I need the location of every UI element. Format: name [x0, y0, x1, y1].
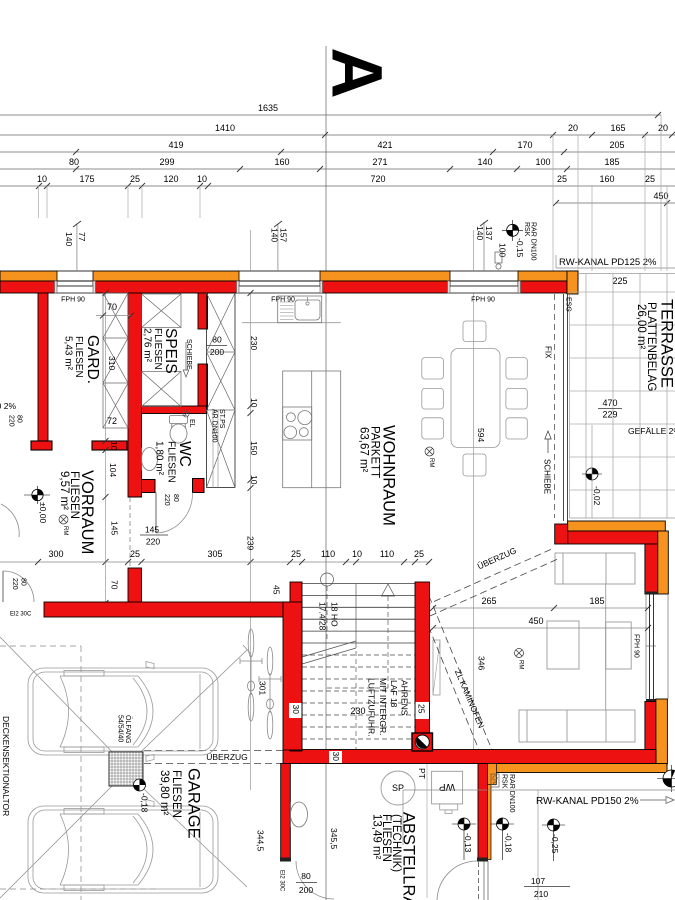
- svg-text:205: 205: [609, 140, 624, 150]
- svg-text:2,76 m²: 2,76 m²: [142, 328, 153, 363]
- svg-text:140: 140: [477, 157, 492, 167]
- svg-text:1,80 m²: 1,80 m²: [154, 441, 165, 476]
- svg-text:LAF 18: LAF 18: [389, 680, 399, 708]
- svg-text:305: 305: [207, 549, 222, 559]
- svg-text:SPEIS: SPEIS: [162, 328, 179, 374]
- svg-text:299: 299: [159, 157, 174, 167]
- svg-text:220: 220: [163, 494, 170, 506]
- svg-text:421: 421: [377, 140, 392, 150]
- svg-text:El2 30C: El2 30C: [279, 870, 285, 892]
- svg-text:-0,25: -0,25: [550, 834, 560, 854]
- svg-text:145: 145: [110, 521, 120, 535]
- svg-text:80: 80: [20, 578, 27, 586]
- svg-text:A: A: [317, 47, 396, 98]
- svg-text:140: 140: [475, 226, 485, 240]
- svg-text:30: 30: [291, 705, 301, 715]
- svg-text:WC: WC: [176, 441, 193, 467]
- svg-text:25: 25: [557, 174, 567, 184]
- svg-text:AR DN100: AR DN100: [211, 409, 218, 443]
- svg-text:80: 80: [16, 415, 23, 423]
- svg-text:LUFTZUFUHR.: LUFTZUFUHR.: [367, 678, 377, 737]
- svg-text:ÜBERZUG: ÜBERZUG: [206, 752, 248, 762]
- svg-text:1635: 1635: [258, 103, 278, 113]
- svg-text:100: 100: [535, 157, 550, 167]
- svg-text:30: 30: [331, 752, 341, 762]
- svg-text:210: 210: [534, 889, 548, 899]
- svg-text:220: 220: [146, 537, 160, 547]
- svg-text:GEFÄLLE 2%: GEFÄLLE 2%: [628, 426, 675, 436]
- svg-text:110: 110: [321, 549, 335, 559]
- svg-text:13,49 m²: 13,49 m²: [371, 814, 383, 860]
- svg-text:80: 80: [301, 871, 311, 881]
- svg-text:10: 10: [109, 441, 119, 451]
- svg-text:1410: 1410: [215, 123, 235, 133]
- svg-text:FPH 90: FPH 90: [271, 297, 295, 304]
- svg-text:5,43 m²: 5,43 m²: [63, 336, 74, 371]
- svg-text:301: 301: [258, 681, 268, 695]
- svg-text:-0,15: -0,15: [515, 238, 525, 258]
- svg-text:185: 185: [589, 596, 604, 606]
- svg-text:225: 225: [612, 276, 627, 286]
- svg-text:-0,18: -0,18: [504, 833, 514, 853]
- svg-text:594: 594: [476, 428, 486, 442]
- svg-text:RM: RM: [62, 526, 68, 535]
- svg-text:9,57 m²: 9,57 m²: [58, 471, 70, 510]
- svg-text:265: 265: [481, 596, 496, 606]
- svg-text:80: 80: [172, 494, 179, 502]
- svg-text:25: 25: [414, 549, 424, 559]
- svg-text:345,5: 345,5: [329, 828, 339, 850]
- svg-text:RAR DN100: RAR DN100: [508, 774, 515, 813]
- svg-text:FLIESEN: FLIESEN: [152, 328, 163, 370]
- svg-text:AHRENS: AHRENS: [400, 680, 410, 716]
- svg-text:470: 470: [602, 398, 617, 408]
- svg-text:80: 80: [212, 335, 222, 345]
- svg-text:RW-KANAL PD125 2%: RW-KANAL PD125 2%: [559, 257, 657, 268]
- svg-text:FLIESEN: FLIESEN: [170, 770, 182, 818]
- svg-text:160: 160: [274, 157, 289, 167]
- svg-text:FPH 90: FPH 90: [61, 297, 85, 304]
- svg-text:25: 25: [130, 549, 140, 559]
- svg-text:20: 20: [658, 123, 668, 133]
- svg-text:140: 140: [64, 232, 74, 246]
- svg-text:419: 419: [168, 140, 183, 150]
- svg-text:229: 229: [602, 410, 617, 420]
- svg-text:107: 107: [531, 876, 545, 886]
- svg-text:120: 120: [163, 174, 178, 184]
- svg-text:El2 30C: El2 30C: [10, 612, 32, 618]
- svg-text:45: 45: [272, 585, 282, 595]
- svg-text:175: 175: [79, 174, 94, 184]
- svg-text:FIX: FIX: [544, 346, 553, 359]
- svg-text:271: 271: [372, 157, 387, 167]
- svg-text:77: 77: [77, 232, 87, 242]
- svg-text:±0,00: ±0,00: [38, 502, 48, 523]
- svg-text:70: 70: [107, 302, 117, 312]
- svg-text:300: 300: [48, 549, 63, 559]
- svg-text:160: 160: [599, 174, 614, 184]
- svg-text:-0,50 2%: -0,50 2%: [0, 401, 16, 411]
- svg-text:SP: SP: [392, 783, 404, 793]
- svg-text:220: 220: [8, 415, 15, 427]
- svg-text:-0,18: -0,18: [140, 793, 150, 813]
- svg-text:SCHIEBE: SCHIEBE: [543, 459, 552, 494]
- svg-text:25: 25: [291, 549, 301, 559]
- svg-text:185: 185: [604, 157, 619, 167]
- svg-text:150: 150: [249, 441, 259, 455]
- svg-text:-0,02: -0,02: [592, 486, 602, 506]
- svg-text:20: 20: [568, 123, 578, 133]
- svg-text:WOHNRAUM: WOHNRAUM: [380, 425, 398, 526]
- svg-text:RSK: RSK: [501, 774, 508, 789]
- svg-text:25: 25: [130, 174, 140, 184]
- svg-text:200: 200: [299, 885, 313, 895]
- svg-text:54/54/40: 54/54/40: [117, 715, 124, 742]
- svg-text:310: 310: [107, 356, 117, 370]
- svg-text:70: 70: [110, 580, 120, 590]
- svg-text:145: 145: [145, 525, 159, 535]
- svg-text:DECKENSEKTIONALTOR: DECKENSEKTIONALTOR: [1, 716, 11, 816]
- svg-text:GARAGE: GARAGE: [185, 768, 203, 839]
- svg-text:344,5: 344,5: [256, 830, 266, 852]
- svg-text:230: 230: [350, 706, 365, 716]
- svg-text:ÖLFANG: ÖLFANG: [124, 715, 132, 743]
- svg-text:140: 140: [269, 228, 279, 242]
- svg-text:PT: PT: [417, 768, 427, 779]
- svg-text:110: 110: [380, 549, 394, 559]
- svg-text:FLIESEN: FLIESEN: [166, 441, 177, 483]
- svg-text:26,00 m²: 26,00 m²: [635, 304, 647, 350]
- svg-text:100: 100: [498, 243, 508, 257]
- svg-text:239: 239: [245, 536, 255, 550]
- svg-text:165: 165: [610, 123, 625, 133]
- svg-text:RSK: RSK: [523, 222, 530, 237]
- svg-text:FLIESEN: FLIESEN: [73, 336, 84, 378]
- svg-text:220: 220: [11, 578, 18, 590]
- svg-text:104: 104: [108, 463, 118, 477]
- svg-text:72: 72: [107, 416, 117, 426]
- svg-text:ESG: ESG: [565, 297, 572, 312]
- svg-text:FPH 90: FPH 90: [471, 297, 495, 304]
- svg-text:39,80 m²: 39,80 m²: [158, 770, 170, 816]
- svg-text:450: 450: [528, 616, 543, 626]
- svg-text:18 HO: 18 HO: [330, 602, 340, 627]
- svg-text:63,67 m²: 63,67 m²: [358, 427, 370, 473]
- svg-text:25: 25: [645, 174, 655, 184]
- svg-text:MIT INTERGR.: MIT INTERGR.: [378, 678, 388, 735]
- svg-text:FPH 90: FPH 90: [633, 634, 640, 658]
- svg-text:346: 346: [477, 656, 487, 670]
- svg-text:TERRASSE: TERRASSE: [658, 299, 675, 388]
- svg-text:RM: RM: [518, 660, 524, 669]
- svg-text:80: 80: [69, 157, 79, 167]
- svg-text:720: 720: [370, 174, 385, 184]
- svg-text:EL: EL: [188, 419, 195, 428]
- svg-text:10: 10: [352, 549, 362, 559]
- svg-text:25: 25: [417, 704, 427, 714]
- svg-text:230: 230: [249, 336, 259, 350]
- svg-text:GARD.: GARD.: [84, 335, 101, 384]
- svg-text:17.4/28: 17.4/28: [318, 602, 328, 631]
- svg-text:ST.PS: ST.PS: [218, 409, 225, 429]
- svg-text:10: 10: [37, 174, 47, 184]
- svg-text:RW-KANAL PD150 2%: RW-KANAL PD150 2%: [536, 796, 639, 807]
- svg-text:-0,13: -0,13: [463, 833, 473, 853]
- svg-text:170: 170: [517, 140, 532, 150]
- svg-text:10: 10: [197, 174, 207, 184]
- svg-text:RM: RM: [428, 458, 434, 467]
